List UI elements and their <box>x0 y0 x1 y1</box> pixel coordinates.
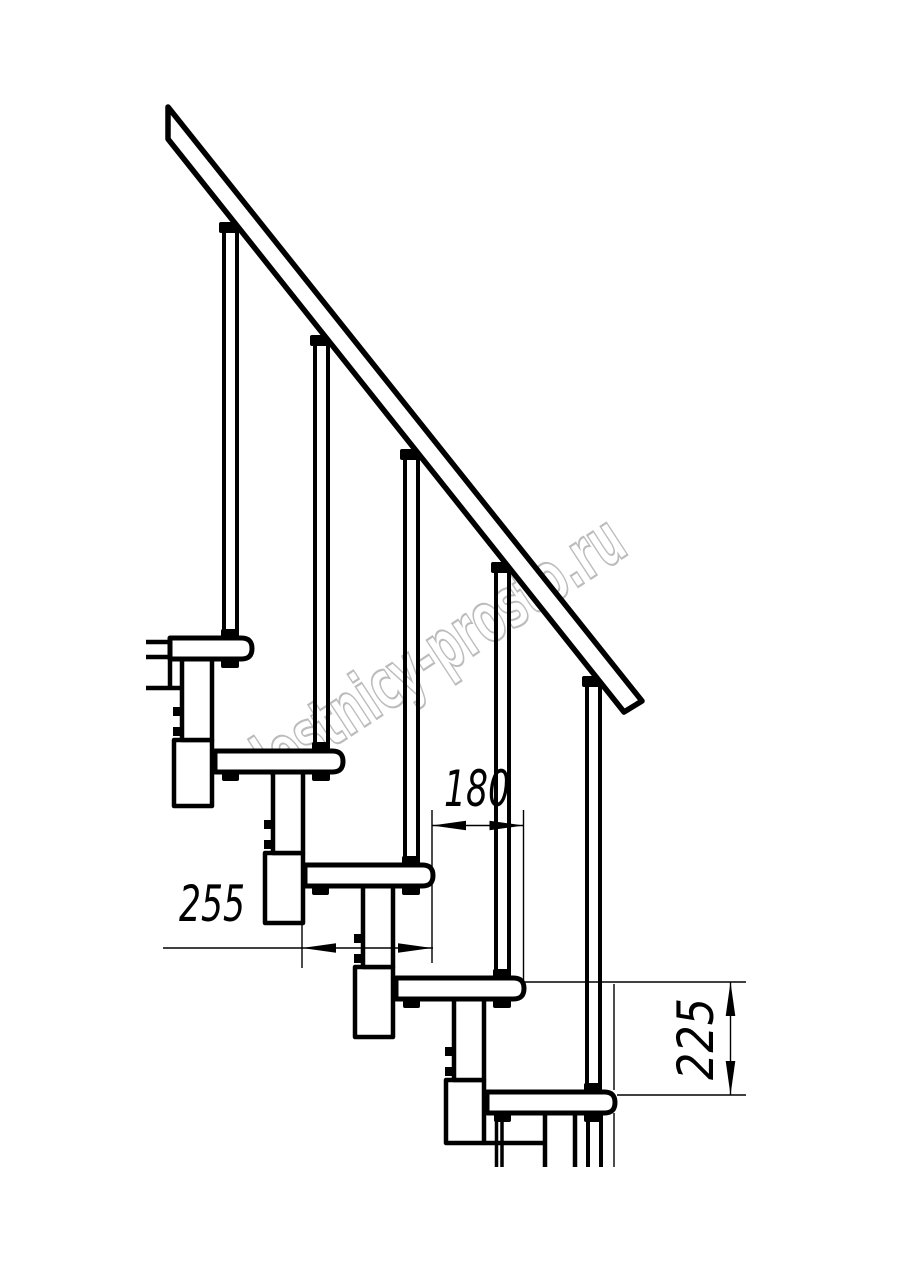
support-module-3 <box>354 886 393 1037</box>
staircase-drawing: lestnicy-prosto.ru <box>0 0 914 1280</box>
support-module-1 <box>173 659 212 806</box>
dimension-255-label: 255 <box>179 875 245 933</box>
tread-2 <box>215 751 343 772</box>
dimension-225-label: 225 <box>667 998 725 1080</box>
dimension-225: 225 <box>525 982 746 1167</box>
tread-4 <box>396 978 524 999</box>
tread-5 <box>487 1092 615 1113</box>
dimension-180-label: 180 <box>444 760 510 818</box>
support-module-4 <box>445 999 484 1143</box>
tread-1 <box>170 638 252 659</box>
tread-3 <box>305 865 433 886</box>
support-module-2 <box>264 772 303 923</box>
baluster-5 <box>587 685 600 1089</box>
baluster-1 <box>224 231 237 634</box>
staircase-drawing-page: lestnicy-prosto.ru <box>0 0 914 1280</box>
support-module-5-clipped <box>484 1113 601 1167</box>
